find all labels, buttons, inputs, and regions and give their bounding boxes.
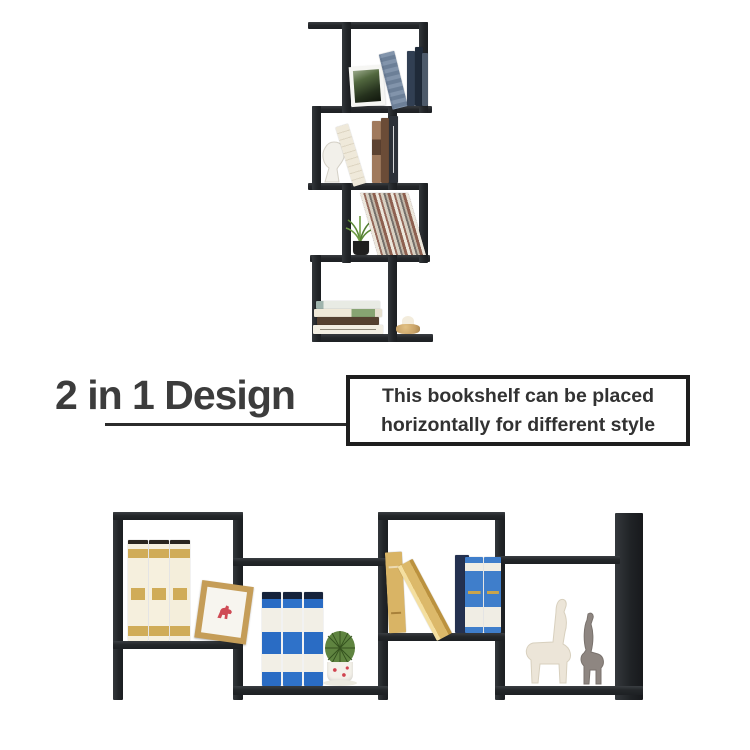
blue-book (304, 592, 323, 686)
shelf-board (495, 556, 620, 564)
shelf-post (113, 512, 123, 700)
shelf-board (113, 512, 243, 520)
plant-photo (353, 69, 381, 103)
callout-line-1: This bookshelf can be placed (382, 382, 654, 411)
dark-book (407, 51, 415, 106)
stacked-book (313, 325, 383, 334)
dala-horse-picture-frame (194, 580, 254, 645)
plant-pot (353, 241, 369, 255)
shelf-board (308, 183, 428, 190)
shelf-board (310, 255, 430, 262)
shelf-board (495, 686, 643, 695)
shelf-board (308, 22, 428, 29)
blue-book (283, 592, 302, 686)
frame-mat (201, 587, 247, 638)
pot-saucer (323, 680, 357, 686)
llama-figurine (520, 598, 578, 686)
blue-white-book (484, 557, 501, 633)
blue-white-book (465, 557, 483, 633)
brown-book (381, 118, 389, 183)
connector-line (105, 423, 347, 426)
stacked-book (314, 309, 382, 317)
dala-horse-icon (213, 602, 235, 623)
shelf-board (378, 512, 505, 520)
brown-book (372, 121, 381, 183)
shelf-board (312, 106, 432, 113)
cactus-pot (327, 662, 353, 682)
shelf-post (378, 512, 388, 700)
candle-base (396, 324, 420, 334)
cactus-icon (322, 628, 358, 666)
blue-book (262, 592, 281, 686)
shelf-board (233, 686, 388, 695)
callout-box: This bookshelf can be placed horizontall… (346, 375, 690, 446)
leaning-book-stack (360, 193, 426, 255)
cream-gold-book (170, 540, 190, 641)
callout-line-2: horizontally for different style (381, 411, 655, 440)
dark-book (422, 53, 428, 106)
shelf-board (233, 558, 388, 566)
product-image: 2 in 1 Design This bookshelf can be plac… (0, 0, 750, 750)
framed-plant-photo (349, 65, 386, 107)
stacked-book (317, 317, 379, 325)
cactus-in-pot (322, 628, 358, 686)
cream-gold-book (128, 540, 148, 641)
shelf-board (113, 641, 243, 649)
cream-gold-book (149, 540, 169, 641)
page-title: 2 in 1 Design (55, 372, 295, 419)
round-candle-holder (396, 316, 420, 334)
giraffe-figurine (578, 612, 610, 686)
vertical-bookshelf (308, 22, 433, 348)
horizontal-bookshelf (113, 512, 643, 700)
dark-book (389, 116, 398, 183)
shelf-end-panel (615, 513, 643, 700)
stacked-book (316, 301, 380, 309)
shelf-board (312, 334, 433, 342)
